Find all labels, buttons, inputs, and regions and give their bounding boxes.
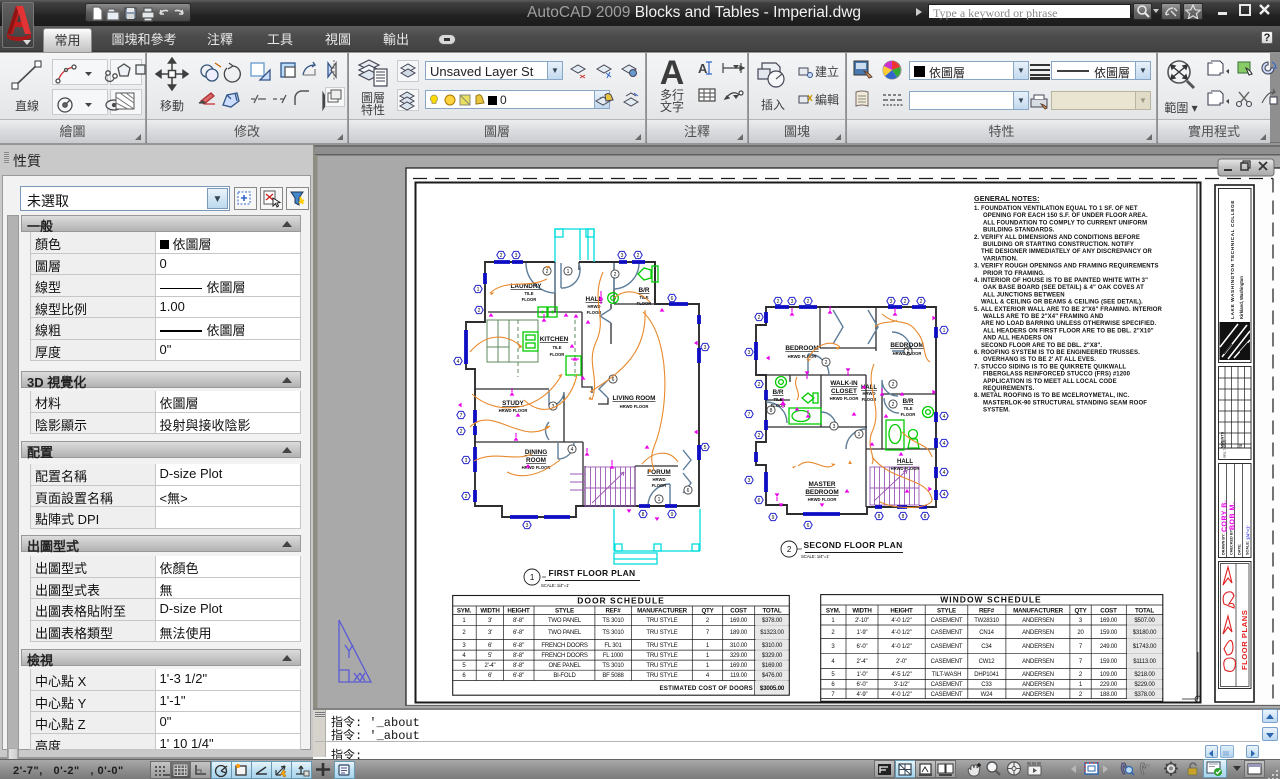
svg-text:5': 5' (488, 653, 492, 659)
svg-text:6: 6 (612, 377, 615, 383)
svg-text:1: 1 (943, 328, 946, 334)
svg-text:1: 1 (477, 287, 480, 293)
svg-text:9: 9 (772, 515, 775, 521)
svg-text:229.00: 229.00 (1100, 682, 1118, 688)
svg-text:TILE: TILE (524, 291, 533, 296)
svg-text:ANDERSEN: ANDERSEN (1022, 692, 1054, 698)
svg-text:TRU STYLE: TRU STYLE (646, 618, 677, 624)
svg-text:$1323.00: $1323.00 (760, 630, 784, 636)
svg-text:MASTER: MASTER (809, 481, 836, 488)
svg-text:2: 2 (825, 360, 828, 366)
svg-text:329.00: 329.00 (730, 653, 748, 659)
svg-text:2: 2 (807, 299, 810, 305)
svg-text:HEIGHT: HEIGHT (507, 608, 530, 615)
svg-text:6': 6' (488, 673, 492, 679)
svg-text:ANDERSEN: ANDERSEN (1022, 644, 1054, 650)
svg-text:REF#: REF# (979, 608, 995, 615)
svg-text:2: 2 (892, 402, 895, 408)
svg-text:FLOOR: FLOOR (550, 352, 565, 357)
svg-text:6: 6 (807, 523, 810, 529)
svg-text:LIVING ROOM: LIVING ROOM (613, 395, 656, 402)
svg-text:1'-9": 1'-9" (857, 630, 868, 636)
svg-text:MANUFACTURER: MANUFACTURER (1013, 608, 1064, 615)
svg-text:TRU STYLE: TRU STYLE (646, 663, 677, 669)
svg-text:1: 1 (658, 497, 661, 503)
svg-text:HRWD FLOOR: HRWD FLOOR (808, 497, 837, 502)
svg-text:2'-10": 2'-10" (855, 618, 869, 624)
svg-text:3': 3' (488, 630, 492, 636)
svg-text:6'-8": 6'-8" (513, 630, 524, 636)
svg-text:2. VERIFY ALL DIMENSIONS AND: 2. VERIFY ALL DIMENSIONS AND CONDITIONS … (974, 235, 1140, 241)
svg-text:CORY B.: CORY B. (1222, 500, 1229, 532)
svg-text:COST: COST (1100, 608, 1117, 615)
svg-text:$229.00: $229.00 (1134, 682, 1155, 688)
svg-text:5. ALL EXTERIOR WALL ARE TO B: 5. ALL EXTERIOR WALL ARE TO BE 2"X6" FRA… (974, 307, 1163, 313)
svg-text:CASEMENT: CASEMENT (931, 630, 963, 636)
svg-text:3: 3 (621, 253, 624, 259)
svg-text:ANDERSEN: ANDERSEN (1022, 659, 1054, 665)
svg-text:159.00: 159.00 (1100, 659, 1118, 665)
svg-text:FL 1000: FL 1000 (603, 653, 624, 659)
svg-text:TOTAL: TOTAL (1135, 608, 1154, 615)
svg-text:3'-1/2": 3'-1/2" (894, 682, 910, 688)
svg-text:TWO PANEL: TWO PANEL (548, 630, 582, 636)
svg-text:1. FOUNDATION VENTILATION EQU: 1. FOUNDATION VENTILATION EQUAL TO 1 SF.… (974, 206, 1138, 212)
svg-text:TILE: TILE (903, 406, 912, 411)
svg-text:3: 3 (748, 350, 751, 356)
svg-text:OAK BASE BOARD (SEE DETAIL) &: OAK BASE BOARD (SEE DETAIL) & 4" OAK COV… (983, 285, 1144, 291)
svg-text:SCALE: 1/4"=1': SCALE: 1/4"=1' (541, 583, 570, 588)
svg-text:8: 8 (902, 514, 905, 520)
svg-text:FL 301: FL 301 (604, 643, 622, 649)
svg-text:6. ROOFING SYSTEM IS TO BE EN: 6. ROOFING SYSTEM IS TO BE ENGINEERED TR… (974, 350, 1140, 356)
svg-text:2: 2 (777, 299, 780, 305)
svg-text:2'-4": 2'-4" (485, 663, 496, 669)
svg-text:8'-8": 8'-8" (513, 618, 524, 624)
svg-text:Kirkland, Washington: Kirkland, Washington (1239, 276, 1244, 319)
svg-text:TOTAL: TOTAL (762, 608, 781, 615)
svg-text:B/R: B/R (902, 398, 913, 405)
svg-text:3: 3 (833, 424, 836, 430)
svg-text:310.00: 310.00 (730, 643, 748, 649)
svg-text:CASEMENT: CASEMENT (931, 659, 963, 665)
svg-text:1: 1 (858, 432, 861, 438)
svg-text:8: 8 (642, 512, 645, 518)
svg-text:2: 2 (758, 382, 761, 388)
svg-text:DHP1041: DHP1041 (974, 672, 999, 678)
svg-text:HRWD FLOOR: HRWD FLOOR (893, 351, 922, 356)
svg-text:LAKE WASHINGTON TECHNICAL COLL: LAKE WASHINGTON TECHNICAL COLLEGE (1230, 200, 1236, 319)
svg-text:109.00: 109.00 (1100, 672, 1118, 678)
svg-text:6'-8": 6'-8" (513, 673, 524, 679)
svg-text:HALL: HALL (897, 459, 913, 465)
svg-text:6': 6' (488, 643, 492, 649)
svg-text:189.00: 189.00 (730, 630, 748, 636)
svg-text:W24: W24 (981, 692, 994, 698)
svg-text:1: 1 (567, 269, 570, 275)
svg-text:2: 2 (637, 253, 640, 259)
svg-text:3: 3 (465, 458, 468, 464)
svg-text:4'-9": 4'-9" (857, 692, 868, 698)
svg-text:3: 3 (704, 345, 707, 351)
svg-text:ONE PANEL: ONE PANEL (548, 663, 581, 669)
svg-text:FIBERGLASS REINFORCED STUCCO (: FIBERGLASS REINFORCED STUCCO (FRS) #1200 (983, 372, 1131, 378)
svg-text:COST: COST (730, 608, 747, 615)
svg-text:6'-8": 6'-8" (513, 643, 524, 649)
svg-text:HRWD: HRWD (653, 477, 666, 482)
svg-text:QTY: QTY (701, 608, 714, 615)
svg-text:2: 2 (478, 308, 481, 314)
svg-text:188.00: 188.00 (1100, 692, 1118, 698)
svg-text:7: 7 (748, 412, 751, 418)
svg-text:DOOR SCHEDULE: DOOR SCHEDULE (577, 596, 665, 606)
svg-text:249.00: 249.00 (1100, 644, 1118, 650)
svg-text:119.00: 119.00 (730, 673, 748, 679)
svg-text:STYLE: STYLE (555, 608, 574, 615)
svg-text:TILT-WASH: TILT-WASH (932, 672, 962, 678)
svg-text:8: 8 (924, 514, 927, 520)
svg-text:ALL JUNCTIONS BETWEEN: ALL JUNCTIONS BETWEEN (983, 292, 1065, 298)
svg-text:1/4"=1': 1/4"=1' (1246, 525, 1251, 540)
svg-text:HEIGHT: HEIGHT (890, 608, 913, 615)
svg-text:SCALE: 1/4"=1': SCALE: 1/4"=1' (801, 554, 830, 559)
svg-text:STYLE: STYLE (937, 608, 956, 615)
svg-text:4: 4 (571, 447, 574, 453)
svg-text:WALLS ARE TO BE 2"X4" FRAMING: WALLS ARE TO BE 2"X4" FRAMING AND (983, 314, 1104, 320)
svg-text:8'-8": 8'-8" (513, 663, 524, 669)
svg-text:4. INTERIOR OF HOUSE IS TO BE: 4. INTERIOR OF HOUSE IS TO BE PAINTED WH… (974, 278, 1148, 284)
svg-text:HRWD FLOOR: HRWD FLOOR (499, 408, 528, 413)
svg-text:2: 2 (892, 382, 895, 388)
svg-text:TS 3010: TS 3010 (602, 663, 624, 669)
svg-text:TRU STYLE: TRU STYLE (646, 643, 677, 649)
svg-text:2'-0": 2'-0" (896, 659, 907, 665)
svg-text:2: 2 (758, 315, 761, 321)
svg-text:$507.00: $507.00 (1134, 618, 1155, 624)
svg-text:HRWD FLOOR: HRWD FLOOR (788, 354, 817, 359)
svg-text:8. METAL ROOFING IS TO BE MCE: 8. METAL ROOFING IS TO BE MCELROYMETAL, … (974, 393, 1130, 399)
svg-text:2: 2 (758, 433, 761, 439)
svg-text:ROOM: ROOM (526, 457, 546, 464)
svg-text:FLOOR: FLOOR (522, 297, 537, 302)
svg-text:159.00: 159.00 (1100, 630, 1118, 636)
svg-text:THE DESIGNER IMMEDIATELY OF AN: THE DESIGNER IMMEDIATELY OF ANY DISCREPA… (981, 249, 1153, 255)
svg-text:3. VERIFY ROUGH OPENINGS AND: 3. VERIFY ROUGH OPENINGS AND FRAMING REQ… (974, 264, 1159, 270)
svg-text:C34: C34 (981, 644, 992, 650)
svg-text:CASEMENT: CASEMENT (931, 682, 963, 688)
svg-text:2: 2 (465, 494, 468, 500)
svg-text:$310.00: $310.00 (762, 643, 783, 649)
svg-text:4'-5 1/2": 4'-5 1/2" (891, 672, 911, 678)
svg-text:HRWD FLOOR: HRWD FLOOR (891, 466, 920, 471)
svg-text:3: 3 (526, 523, 529, 529)
svg-text:7: 7 (460, 413, 463, 419)
svg-text:SECOND FLOOR PLAN: SECOND FLOOR PLAN (803, 540, 902, 550)
svg-text:BEDROOM: BEDROOM (805, 489, 838, 496)
svg-text:$169.00: $169.00 (762, 663, 783, 669)
svg-text:ARE NO LOAD BARRING UNLESS OTH: ARE NO LOAD BARRING UNLESS OTHERWISE SPE… (981, 321, 1157, 327)
svg-text:8: 8 (878, 514, 881, 520)
svg-text:20: 20 (1077, 630, 1084, 636)
svg-text:9F0-7=2EA: 9F0-7=2EA (1223, 440, 1227, 458)
svg-text:BUILDING OR STARTING CONSTRUCT: BUILDING OR STARTING CONSTRUCTION. NOTIF… (983, 242, 1134, 248)
svg-text:OVERHANG IS TO BE 2' AT ALL EV: OVERHANG IS TO BE 2' AT ALL EVES. (983, 357, 1096, 363)
svg-text:4'-0 1/2": 4'-0 1/2" (891, 644, 911, 650)
svg-text:$378.00: $378.00 (1134, 692, 1155, 698)
svg-text:$329.00: $329.00 (762, 653, 783, 659)
svg-text:ANDERSEN: ANDERSEN (1022, 630, 1054, 636)
svg-text:$3005.00: $3005.00 (760, 685, 785, 692)
svg-text:ANDERSEN: ANDERSEN (1022, 672, 1054, 678)
svg-text:QTY: QTY (1074, 608, 1087, 615)
svg-text:ALL HEADERS ON FIRST FLOOR ARE: ALL HEADERS ON FIRST FLOOR ARE TO BE DBL… (983, 328, 1154, 334)
svg-text:C33: C33 (981, 682, 992, 688)
svg-text:BOB M.: BOB M. (1230, 502, 1237, 530)
svg-text:FRENCH DOORS: FRENCH DOORS (541, 653, 587, 659)
svg-text:4: 4 (943, 470, 946, 476)
svg-text:CN14: CN14 (979, 630, 994, 636)
svg-text:SYM.: SYM. (826, 608, 841, 615)
svg-text:CASEMENT: CASEMENT (931, 618, 963, 624)
svg-text:4'-0 1/2": 4'-0 1/2" (891, 618, 911, 624)
svg-text:FLOOR PLANS: FLOOR PLANS (1240, 610, 1249, 670)
svg-text:4'-0 1/2": 4'-0 1/2" (891, 692, 911, 698)
svg-text:8'-8": 8'-8" (513, 653, 524, 659)
svg-text:FLOOR: FLOOR (901, 412, 916, 417)
svg-text:CASEMENT: CASEMENT (931, 692, 963, 698)
svg-text:6: 6 (671, 296, 674, 302)
svg-text:169.00: 169.00 (1100, 618, 1118, 624)
svg-text:TS 3010: TS 3010 (602, 618, 624, 624)
svg-text:4: 4 (943, 441, 946, 447)
svg-text:KITCHEN: KITCHEN (540, 336, 569, 343)
svg-text:TRU STYLE: TRU STYLE (646, 653, 677, 659)
svg-text:6'-0": 6'-0" (857, 644, 868, 650)
svg-text:CW12: CW12 (979, 659, 996, 665)
svg-text:WIDTH: WIDTH (852, 608, 872, 615)
svg-text:3: 3 (791, 299, 794, 305)
svg-text:WALL & CEILING OR BEAMS & CEIL: WALL & CEILING OR BEAMS & CEILING (SEE D… (981, 300, 1143, 306)
svg-text:ALL FOUNDATION TO COMPLY TO CU: ALL FOUNDATION TO COMPLY TO CURRENT UNIF… (983, 220, 1147, 226)
svg-text:GENERAL NOTES:: GENERAL NOTES: (974, 194, 1040, 203)
svg-text:B/R: B/R (638, 287, 649, 294)
svg-text:OPENING FOR EACH 150 S.F. OF U: OPENING FOR EACH 150 S.F. OF UNDER FLOOR… (983, 213, 1148, 219)
svg-text:DATE:: DATE: (1238, 544, 1242, 555)
svg-text:TILE: TILE (773, 397, 782, 402)
svg-text:ESTIMATED COST OF DOORS: ESTIMATED COST OF DOORS (659, 685, 753, 692)
svg-text:WINDOW SCHEDULE: WINDOW SCHEDULE (940, 595, 1041, 605)
svg-text:SCALE:: SCALE: (1246, 541, 1250, 555)
svg-text:REF#: REF# (605, 608, 621, 615)
svg-text:VARIATION.: VARIATION. (983, 256, 1018, 262)
svg-text:BUILDING STANDARDS.: BUILDING STANDARDS. (983, 228, 1055, 234)
svg-text:2: 2 (460, 429, 463, 435)
svg-text:BI-FOLD: BI-FOLD (553, 673, 576, 679)
svg-text:2: 2 (546, 269, 549, 275)
svg-text:ANDERSEN: ANDERSEN (1022, 682, 1054, 688)
svg-text:9: 9 (671, 512, 674, 518)
svg-text:B/R: B/R (772, 389, 783, 396)
svg-text:AND ALL HEADERS ON: AND ALL HEADERS ON (983, 336, 1052, 342)
svg-text:HRWD FLOOR: HRWD FLOOR (830, 396, 859, 401)
svg-text:SECOND FLOOR ARE TO BE DBL. 2": SECOND FLOOR ARE TO BE DBL. 2"X8". (981, 343, 1102, 349)
svg-text:MANUFACTURER: MANUFACTURER (637, 608, 688, 615)
svg-text:7. STUCCO SIDING IS TO BE QUI: 7. STUCCO SIDING IS TO BE QUIKRETE QUIKW… (974, 364, 1126, 370)
svg-text:6'-0": 6'-0" (857, 682, 868, 688)
svg-text:PRIOR TO FRAMING.: PRIOR TO FRAMING. (983, 271, 1045, 277)
svg-text:2: 2 (920, 299, 923, 305)
svg-text:SYM.: SYM. (457, 608, 472, 615)
svg-text:TRU STYLE: TRU STYLE (646, 630, 677, 636)
svg-text:$1743.00: $1743.00 (1133, 644, 1157, 650)
svg-text:6: 6 (758, 498, 761, 504)
svg-text:4: 4 (457, 359, 460, 365)
svg-text:2: 2 (614, 272, 617, 278)
svg-text:2: 2 (904, 299, 907, 305)
svg-text:4: 4 (943, 492, 946, 498)
svg-text:BEDROOM: BEDROOM (890, 342, 923, 349)
svg-text:FIRST FLOOR PLAN: FIRST FLOOR PLAN (549, 568, 636, 578)
svg-text:APPLICATION IS TO MEET ALL LOC: APPLICATION IS TO MEET ALL LOCAL CODE (983, 379, 1117, 385)
svg-text:2'-4": 2'-4" (857, 659, 868, 665)
svg-text:$218.00: $218.00 (1134, 672, 1155, 678)
svg-text:$476.00: $476.00 (762, 673, 783, 679)
svg-text:TW28310: TW28310 (974, 618, 999, 624)
svg-text:4'-0 1/2": 4'-0 1/2" (891, 630, 911, 636)
svg-text:3: 3 (748, 478, 751, 484)
svg-text:FLOOR: FLOOR (652, 483, 667, 488)
svg-text:1'-0": 1'-0" (857, 672, 868, 678)
svg-text:$3180.00: $3180.00 (1133, 630, 1157, 636)
svg-text:5: 5 (704, 445, 707, 451)
svg-text:8: 8 (770, 408, 773, 414)
svg-text:169.00: 169.00 (730, 663, 748, 669)
svg-text:3: 3 (890, 299, 893, 305)
svg-text:3': 3' (488, 618, 492, 624)
svg-text:169.00: 169.00 (730, 618, 748, 624)
svg-text:HRWD FLOOR: HRWD FLOOR (620, 404, 649, 409)
svg-text:TWO PANEL: TWO PANEL (548, 618, 582, 624)
svg-text:6: 6 (687, 488, 690, 494)
svg-text:ANDERSEN: ANDERSEN (1022, 618, 1054, 624)
svg-text:TS 3010: TS 3010 (602, 630, 624, 636)
svg-text:DRAWN BY:: DRAWN BY: (1222, 533, 1226, 555)
svg-text:$378.00: $378.00 (762, 618, 783, 624)
svg-text:$1113.00: $1113.00 (1133, 659, 1156, 665)
svg-text:WALK-IN: WALK-IN (830, 380, 858, 387)
svg-text:WIDTH: WIDTH (480, 608, 500, 615)
svg-text:BF 5088: BF 5088 (602, 673, 624, 679)
svg-text:TRU STYLE: TRU STYLE (646, 673, 677, 679)
svg-text:REQUIREMENTS.: REQUIREMENTS. (983, 386, 1035, 392)
svg-text:CLOSET: CLOSET (831, 388, 857, 395)
svg-text:3: 3 (515, 253, 518, 259)
svg-text:TILE: TILE (552, 345, 561, 350)
svg-text:SYSTEM.: SYSTEM. (983, 408, 1010, 414)
svg-text:FRENCH DOORS: FRENCH DOORS (541, 643, 587, 649)
svg-text:CASEMENT: CASEMENT (931, 644, 963, 650)
svg-text:MASTERLOK-90 STRUCTURAL STANDI: MASTERLOK-90 STRUCTURAL STANDING SEAM RO… (983, 400, 1147, 406)
svg-text:4: 4 (943, 414, 946, 420)
svg-text:2: 2 (500, 253, 503, 259)
svg-text:CHECKED BY:: CHECKED BY: (1230, 529, 1234, 555)
